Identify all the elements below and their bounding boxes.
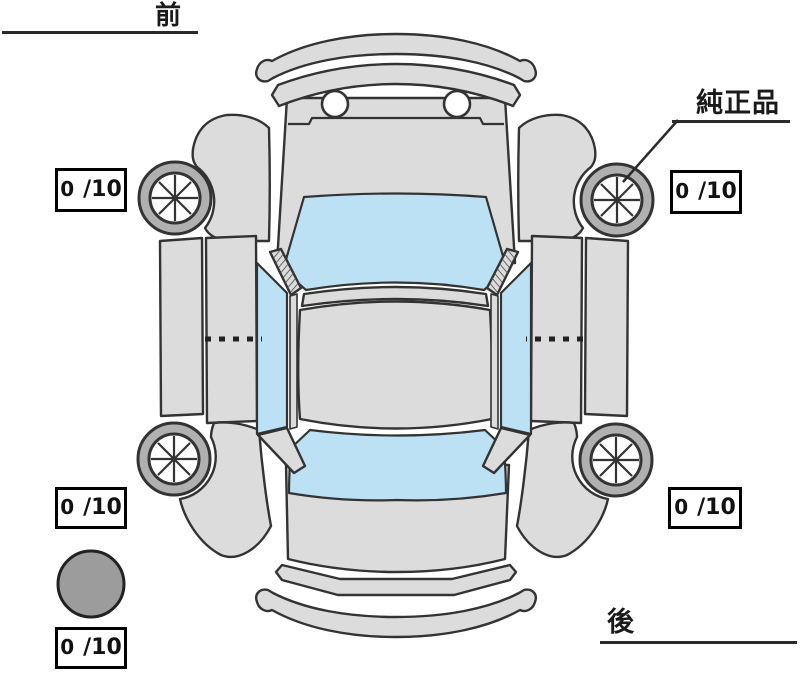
rear-direction-label: 後 — [607, 609, 635, 636]
tire-score-suffix: /10 — [697, 497, 736, 519]
rear-label-underline — [600, 641, 797, 644]
front-direction-label: 前 — [155, 3, 182, 29]
wheel-front-left — [139, 162, 211, 234]
tire-score-front-right: 0 /10 — [670, 170, 742, 214]
tire-score-value: 0 — [60, 497, 74, 517]
tire-score-suffix: /10 — [83, 637, 122, 659]
wheel-rear-right — [580, 424, 652, 496]
tire-score-rear-right: 0 /10 — [668, 487, 742, 529]
tire-score-suffix: /10 — [83, 179, 122, 201]
windshield-glass — [283, 194, 507, 291]
rear-bumper — [256, 590, 536, 637]
wheel-rear-left — [138, 423, 210, 495]
tire-score-spare: 0 /10 — [55, 627, 127, 669]
genuine-parts-label: 純正品 — [696, 90, 780, 117]
roof-panel — [298, 302, 492, 429]
tire-score-front-left: 0 /10 — [55, 168, 127, 212]
front-label-underline — [2, 31, 198, 34]
genuine-parts-underline — [672, 120, 790, 123]
rear-window-glass — [289, 430, 506, 500]
car-top-view-drawing — [0, 0, 800, 675]
tire-score-value: 0 — [674, 497, 688, 517]
spare-tire-circle — [58, 551, 124, 617]
tire-score-value: 0 — [675, 181, 689, 201]
vehicle-condition-diagram: 前 純正品 後 0 /10 0 /10 0 /10 0 /10 0 /10 — [0, 0, 800, 675]
tire-score-suffix: /10 — [83, 497, 122, 519]
left-headlight-circle — [322, 91, 348, 117]
tire-score-suffix: /10 — [698, 181, 737, 203]
tire-score-rear-left: 0 /10 — [55, 487, 127, 529]
tire-score-value: 0 — [60, 179, 74, 199]
right-headlight-circle — [444, 91, 470, 117]
tire-score-value: 0 — [60, 637, 74, 657]
wheel-front-right — [581, 164, 653, 236]
